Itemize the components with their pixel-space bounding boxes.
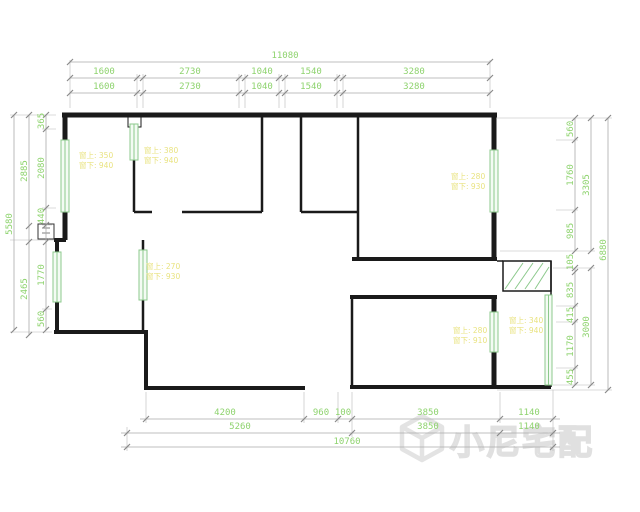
dim-bot-r1-0: 4200: [214, 408, 236, 418]
dim-right-in-1: 1760: [566, 164, 576, 186]
dim-bot-r1-2: 100: [335, 408, 351, 418]
dim-right-in-0: 560: [566, 121, 576, 137]
dim-top-r1-3: 1540: [300, 67, 322, 77]
room-labels: 窗上: 350 窗下: 940 窗上: 380 窗下: 940 窗上: 280 …: [79, 145, 543, 345]
label-1-line2: 窗下: 940: [79, 160, 113, 170]
label-4-line1: 窗上: 270: [146, 261, 180, 271]
dim-left-in-1: 2080: [37, 157, 47, 179]
window-bottom-room: [490, 312, 498, 352]
dim-right-mid-1: 3000: [582, 316, 592, 338]
label-2-line2: 窗下: 940: [144, 155, 178, 165]
dim-right-in-7: 455: [566, 369, 576, 385]
dim-top-total: 11080: [271, 51, 298, 61]
dim-bot-r2-2: 1140: [518, 422, 540, 432]
dim-bot-r2-1: 3850: [417, 422, 439, 432]
label-3-line2: 窗下: 930: [451, 181, 485, 191]
dim-left-in-4: 560: [37, 311, 47, 327]
dim-top-r2-0: 1600: [93, 82, 115, 92]
dim-right-in-3: 105: [566, 254, 576, 270]
window-left-upper: [61, 140, 69, 212]
dims-left: 5580 2885 2465 365 2080 440 1770 560: [5, 112, 56, 338]
dim-bot-total: 10760: [333, 437, 360, 447]
dim-right-total: 6880: [599, 239, 609, 261]
dim-left-total: 5580: [5, 213, 15, 235]
dim-top-r2-3: 1540: [300, 82, 322, 92]
floorplan-canvas: 小尼宅配: [0, 0, 640, 512]
dim-top-r1-4: 3280: [403, 67, 425, 77]
dims-top: 11080 1600 2730 1040 1540 3280 1600 2730…: [67, 51, 493, 108]
dim-top-r1-0: 1600: [93, 67, 115, 77]
dim-bot-r2-0: 5260: [229, 422, 251, 432]
dim-bot-r1-1: 960: [313, 408, 329, 418]
dim-left-mid-1: 2465: [20, 278, 30, 300]
label-5-line2: 窗下: 910: [453, 335, 487, 345]
dim-top-r2-4: 3280: [403, 82, 425, 92]
window-balcony: [545, 295, 552, 385]
label-4-line2: 窗下: 930: [146, 271, 180, 281]
windows: [53, 124, 552, 385]
dim-top-r1-1: 2730: [179, 67, 201, 77]
dim-right-in-6: 1170: [566, 335, 576, 357]
dim-left-in-2: 440: [37, 208, 47, 224]
duct-hatch: [505, 263, 549, 289]
label-6-line2: 窗下: 940: [509, 325, 543, 335]
label-6-line1: 窗上: 340: [509, 315, 543, 325]
dim-left-in-3: 1770: [37, 264, 47, 286]
dim-top-r1-2: 1040: [251, 67, 273, 77]
top-ticks: [67, 59, 493, 96]
dim-right-in-5: 415: [566, 307, 576, 323]
window-left-lower: [53, 252, 61, 302]
dim-right-in-4: 835: [566, 282, 576, 298]
dim-bot-r1-4: 1140: [518, 408, 540, 418]
window-right-upper: [490, 150, 498, 212]
window-partition-upper: [130, 124, 138, 160]
dim-left-mid-0: 2885: [20, 160, 30, 182]
label-2-line1: 窗上: 380: [144, 145, 178, 155]
label-5-line1: 窗上: 280: [453, 325, 487, 335]
cad-floorplan-page: 小尼宅配: [0, 0, 640, 512]
dim-top-r2-1: 2730: [179, 82, 201, 92]
label-1-line1: 窗上: 350: [79, 150, 113, 160]
dim-top-r2-2: 1040: [251, 82, 273, 92]
dim-left-in-0: 365: [37, 113, 47, 129]
dims-right: 560 1760 985 105 835 415 1170 455 3305 3…: [497, 115, 612, 393]
label-3-line1: 窗上: 280: [451, 171, 485, 181]
dim-right-in-2: 985: [566, 223, 576, 239]
dim-bot-r1-3: 3850: [417, 408, 439, 418]
walls: [38, 113, 551, 391]
dim-right-mid-0: 3305: [582, 174, 592, 196]
